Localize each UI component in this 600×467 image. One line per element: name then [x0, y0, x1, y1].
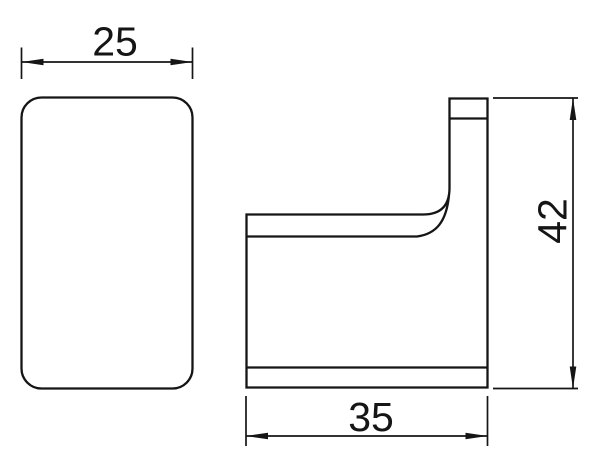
- front-view: [22, 98, 193, 389]
- dimension-depth-label: 35: [348, 394, 394, 440]
- dimension-height: 42: [493, 98, 578, 389]
- dimension-height-label: 42: [530, 198, 576, 244]
- arrowhead-bottom: [570, 367, 577, 389]
- side-view: [247, 99, 488, 388]
- front-view-outline: [22, 98, 193, 389]
- dimension-width-label: 25: [92, 19, 138, 65]
- arrowhead-left: [246, 433, 268, 440]
- arrowhead-right: [466, 433, 488, 440]
- arrowhead-left: [22, 59, 44, 66]
- dimension-width: 25: [22, 19, 193, 80]
- side-view-outline: [247, 99, 488, 388]
- technical-drawing: 25 35 42: [0, 0, 600, 467]
- arrowhead-top: [570, 98, 577, 120]
- arrowhead-right: [171, 59, 193, 66]
- hook-dimension-drawing: 25 35 42: [0, 0, 600, 467]
- dimension-depth: 35: [246, 394, 488, 446]
